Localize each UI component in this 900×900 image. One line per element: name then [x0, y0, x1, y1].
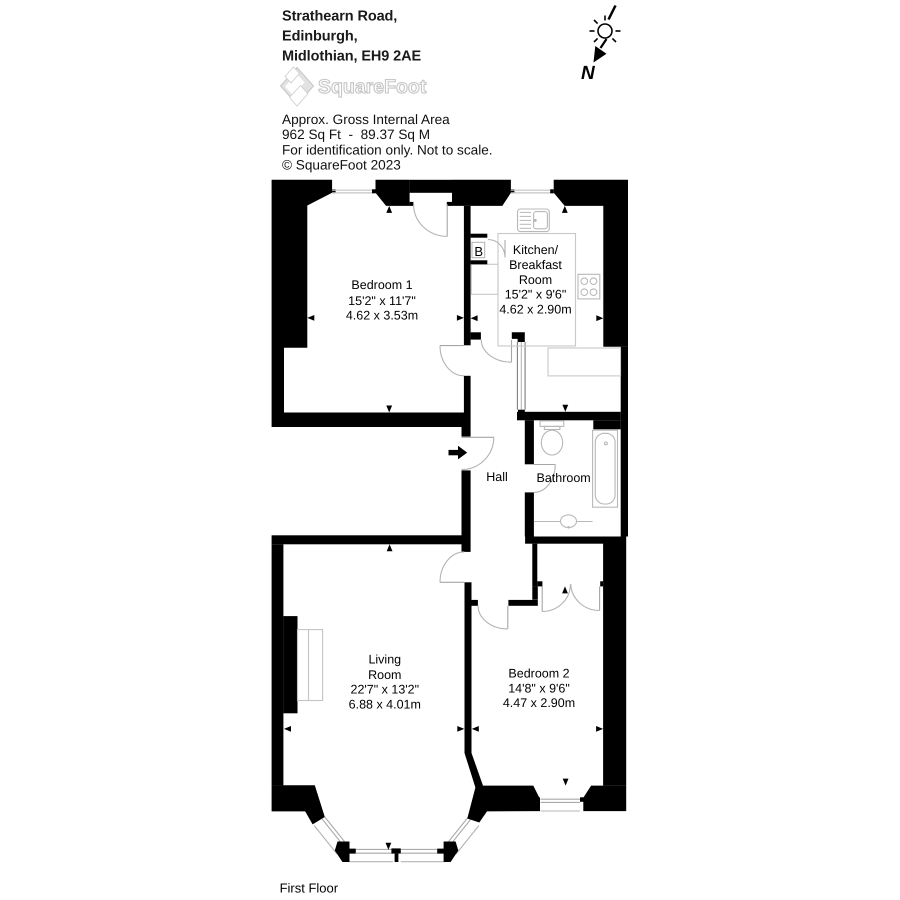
svg-text:SquareFoot: SquareFoot	[318, 76, 427, 98]
svg-text:Midlothian, EH9 2AE: Midlothian, EH9 2AE	[282, 49, 422, 65]
svg-text:14'8" x 9'6": 14'8" x 9'6"	[508, 681, 570, 695]
svg-text:15'2" x 9'6": 15'2" x 9'6"	[505, 287, 567, 301]
svg-text:Strathearn Road,: Strathearn Road,	[282, 9, 397, 25]
svg-text:4.62 x 3.53m: 4.62 x 3.53m	[346, 309, 418, 323]
svg-text:Hall: Hall	[486, 470, 508, 484]
svg-text:First Floor: First Floor	[280, 880, 339, 895]
svg-text:Edinburgh,: Edinburgh,	[282, 29, 358, 45]
svg-text:For identification only. Not t: For identification only. Not to scale.	[282, 142, 493, 157]
svg-text:Bedroom 1: Bedroom 1	[351, 278, 412, 292]
svg-text:Bedroom 2: Bedroom 2	[508, 667, 569, 681]
svg-text:Bathroom: Bathroom	[536, 471, 590, 485]
svg-text:Room: Room	[368, 668, 401, 682]
svg-text:Breakfast: Breakfast	[509, 258, 562, 272]
svg-text:15'2" x 11'7": 15'2" x 11'7"	[348, 294, 416, 308]
svg-text:B: B	[474, 244, 483, 259]
svg-text:Room: Room	[519, 273, 552, 287]
svg-text:6.88 x 4.01m: 6.88 x 4.01m	[349, 698, 421, 712]
svg-text:Living: Living	[368, 652, 401, 666]
svg-text:22'7" x 13'2": 22'7" x 13'2"	[351, 683, 420, 697]
svg-text:Kitchen/: Kitchen/	[513, 243, 559, 257]
svg-text:© SquareFoot 2023: © SquareFoot 2023	[282, 158, 401, 173]
svg-text:4.47 x 2.90m: 4.47 x 2.90m	[503, 696, 575, 710]
svg-text:Approx. Gross Internal Area: Approx. Gross Internal Area	[282, 112, 450, 127]
svg-text:962 Sq Ft - 89.37 Sq M: 962 Sq Ft - 89.37 Sq M	[282, 127, 430, 142]
svg-text:4.62 x 2.90m: 4.62 x 2.90m	[499, 303, 571, 317]
svg-text:N: N	[581, 63, 596, 84]
